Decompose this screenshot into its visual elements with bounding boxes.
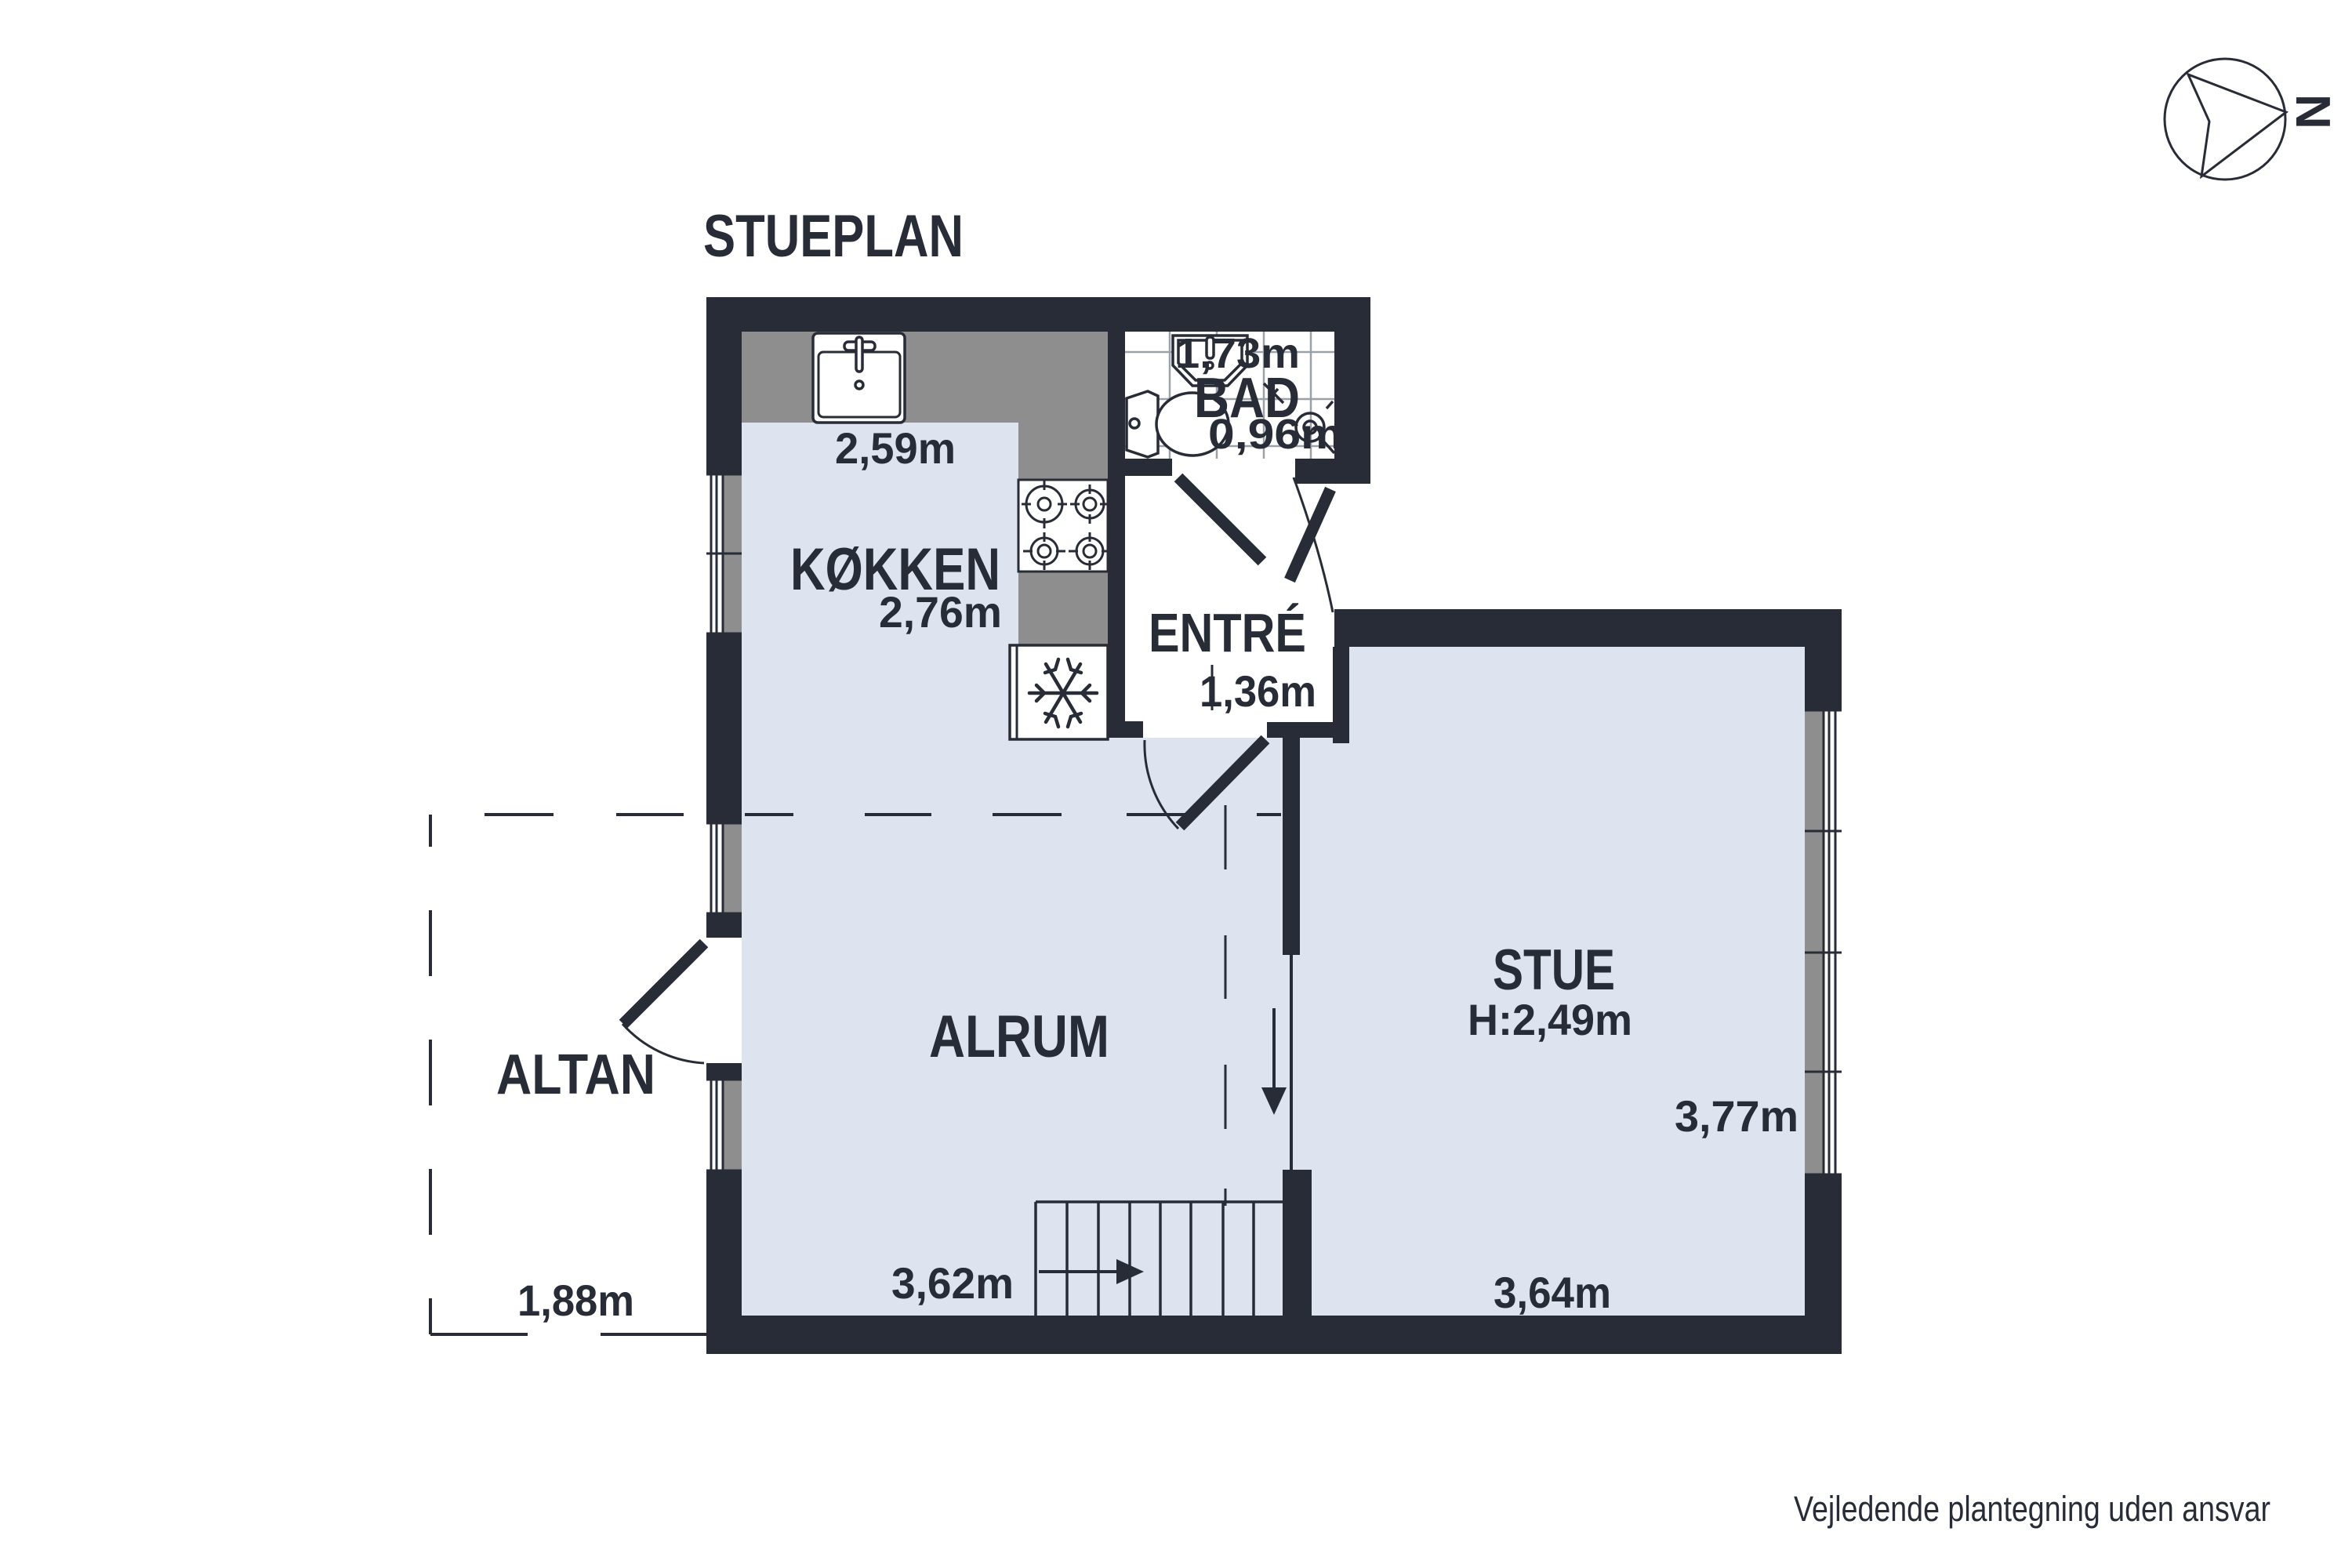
svg-text:STUE: STUE bbox=[1493, 938, 1615, 1002]
svg-text:2,76m: 2,76m bbox=[879, 587, 1002, 637]
svg-text:ALRUM: ALRUM bbox=[929, 1004, 1109, 1070]
svg-text:3,64m: 3,64m bbox=[1494, 1268, 1611, 1317]
svg-text:3,62m: 3,62m bbox=[891, 1258, 1014, 1308]
svg-text:1,36m: 1,36m bbox=[1200, 666, 1316, 716]
svg-text:Vejledende plantegning uden an: Vejledende plantegning uden ansvar bbox=[1794, 1489, 2270, 1529]
svg-text:H:2,49m: H:2,49m bbox=[1468, 995, 1632, 1044]
svg-text:0,96m: 0,96m bbox=[1208, 411, 1343, 458]
svg-text:STUEPLAN: STUEPLAN bbox=[703, 203, 964, 270]
svg-text:ENTRÉ: ENTRÉ bbox=[1149, 602, 1306, 663]
svg-text:1,73m: 1,73m bbox=[1175, 330, 1300, 377]
svg-text:N: N bbox=[2285, 94, 2339, 129]
svg-text:ALTAN: ALTAN bbox=[496, 1044, 655, 1106]
svg-text:3,77m: 3,77m bbox=[1675, 1091, 1798, 1141]
svg-text:1,88m: 1,88m bbox=[517, 1276, 634, 1325]
svg-text:2,59m: 2,59m bbox=[835, 423, 956, 473]
